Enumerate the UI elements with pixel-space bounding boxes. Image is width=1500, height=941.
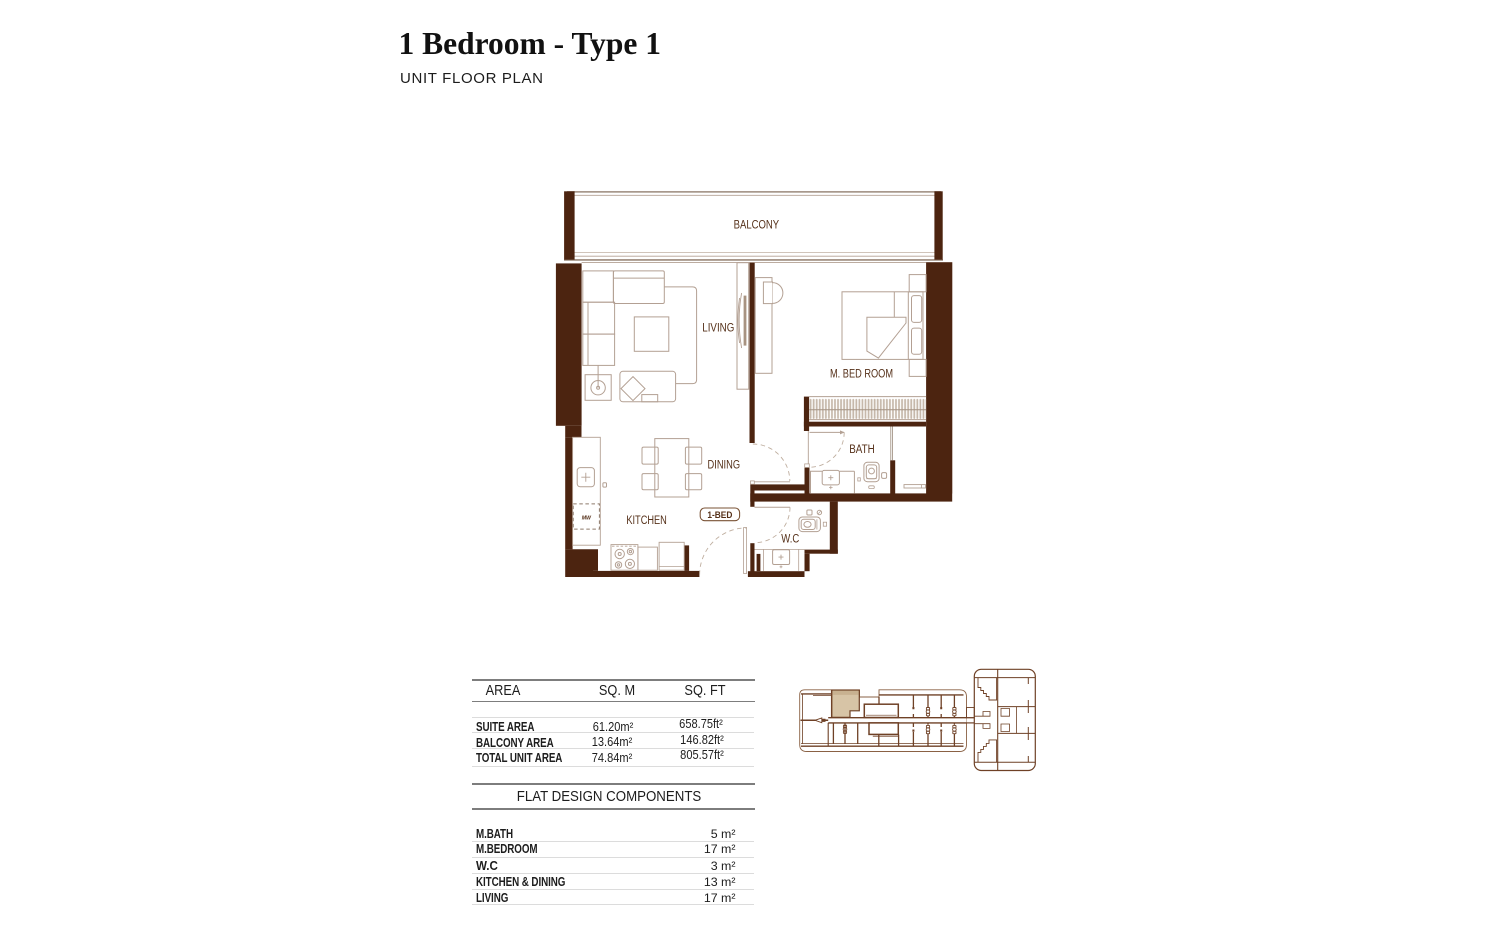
svg-text:DINING: DINING — [708, 459, 741, 471]
svg-text:BATH: BATH — [849, 444, 875, 456]
svg-text:MW: MW — [582, 515, 592, 521]
svg-text:KITCHEN: KITCHEN — [626, 515, 667, 527]
svg-text:W.C: W.C — [781, 534, 799, 546]
svg-text:BALCONY: BALCONY — [734, 218, 780, 232]
svg-text:LIVING: LIVING — [702, 322, 734, 334]
svg-text:1-BED: 1-BED — [707, 510, 732, 520]
svg-text:M. BED ROOM: M. BED ROOM — [830, 369, 893, 381]
